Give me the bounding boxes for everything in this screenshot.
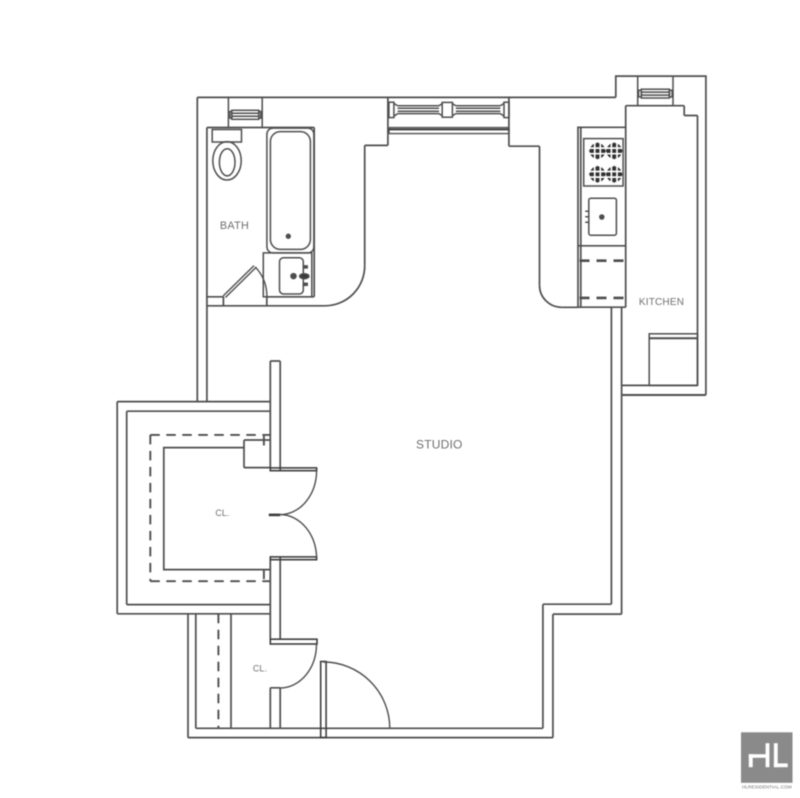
- svg-text:CL.: CL.: [215, 508, 229, 518]
- svg-text:BATH: BATH: [220, 220, 249, 232]
- svg-text:STUDIO: STUDIO: [416, 437, 463, 451]
- svg-text:HLRESIDENTIAL.COM: HLRESIDENTIAL.COM: [742, 785, 792, 790]
- svg-text:CL.: CL.: [253, 664, 267, 674]
- svg-text:KITCHEN: KITCHEN: [639, 297, 684, 308]
